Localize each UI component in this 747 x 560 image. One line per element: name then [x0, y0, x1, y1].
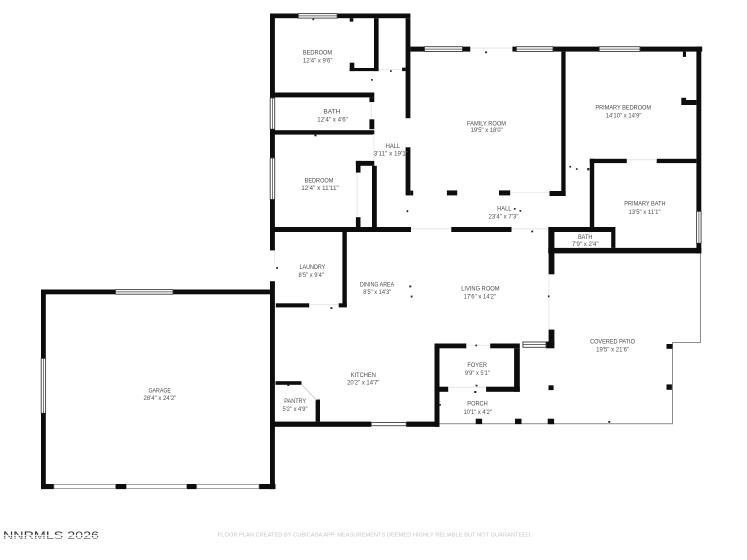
svg-text:12'4" x 11'11": 12'4" x 11'11": [301, 185, 339, 192]
svg-text:12'4" x 9'6": 12'4" x 9'6": [303, 57, 333, 64]
svg-text:5'2" x 4'9": 5'2" x 4'9": [283, 406, 308, 413]
svg-text:14'10" x 14'9": 14'10" x 14'9": [606, 113, 642, 120]
svg-text:FOYER: FOYER: [467, 362, 487, 369]
svg-text:17'6" x 14'2": 17'6" x 14'2": [464, 294, 496, 301]
svg-text:13'5" x 11'1": 13'5" x 11'1": [629, 209, 661, 216]
svg-text:FLOOR PLAN CREATED BY CUBICASA: FLOOR PLAN CREATED BY CUBICASA APP. MEAS…: [218, 533, 532, 539]
svg-text:DINING AREA: DINING AREA: [360, 281, 395, 288]
svg-text:BATH: BATH: [578, 234, 593, 241]
svg-text:20'2" x 14'7": 20'2" x 14'7": [347, 379, 379, 386]
svg-text:23'4" x 7'3": 23'4" x 7'3": [489, 213, 519, 220]
svg-text:KITCHEN: KITCHEN: [351, 372, 377, 379]
svg-text:PRIMARY BATH: PRIMARY BATH: [624, 201, 666, 208]
svg-text:PRIMARY BEDROOM: PRIMARY BEDROOM: [595, 104, 651, 111]
svg-text:GARAGE: GARAGE: [148, 388, 171, 395]
svg-text:COVERED PATIO: COVERED PATIO: [590, 338, 635, 345]
svg-text:PANTRY: PANTRY: [284, 398, 306, 405]
svg-text:3'11" x 19'1": 3'11" x 19'1": [374, 151, 408, 158]
svg-text:BATH: BATH: [323, 109, 340, 116]
svg-text:LIVING ROOM: LIVING ROOM: [461, 286, 499, 293]
svg-text:PORCH: PORCH: [467, 401, 488, 408]
svg-text:LAUNDRY: LAUNDRY: [300, 264, 326, 271]
svg-text:7'9" x 2'4": 7'9" x 2'4": [572, 241, 599, 248]
svg-text:9'9" x 5'1": 9'9" x 5'1": [465, 370, 490, 377]
svg-text:12'4" x 4'6": 12'4" x 4'6": [317, 116, 348, 123]
svg-text:BEDROOM: BEDROOM: [305, 178, 334, 185]
svg-text:HALL: HALL: [386, 143, 401, 150]
svg-text:19'5" x 18'0": 19'5" x 18'0": [471, 127, 503, 134]
svg-text:8'5" x 9'4": 8'5" x 9'4": [299, 272, 324, 279]
svg-text:10'1" x 4'2": 10'1" x 4'2": [463, 409, 492, 416]
svg-text:28'4" x 24'2": 28'4" x 24'2": [144, 395, 177, 402]
svg-text:8'5" x 14'3": 8'5" x 14'3": [363, 289, 391, 296]
svg-text:BEDROOM: BEDROOM: [303, 49, 332, 56]
svg-text:HALL: HALL: [497, 205, 512, 212]
svg-text:19'5" x 21'6": 19'5" x 21'6": [596, 346, 629, 353]
